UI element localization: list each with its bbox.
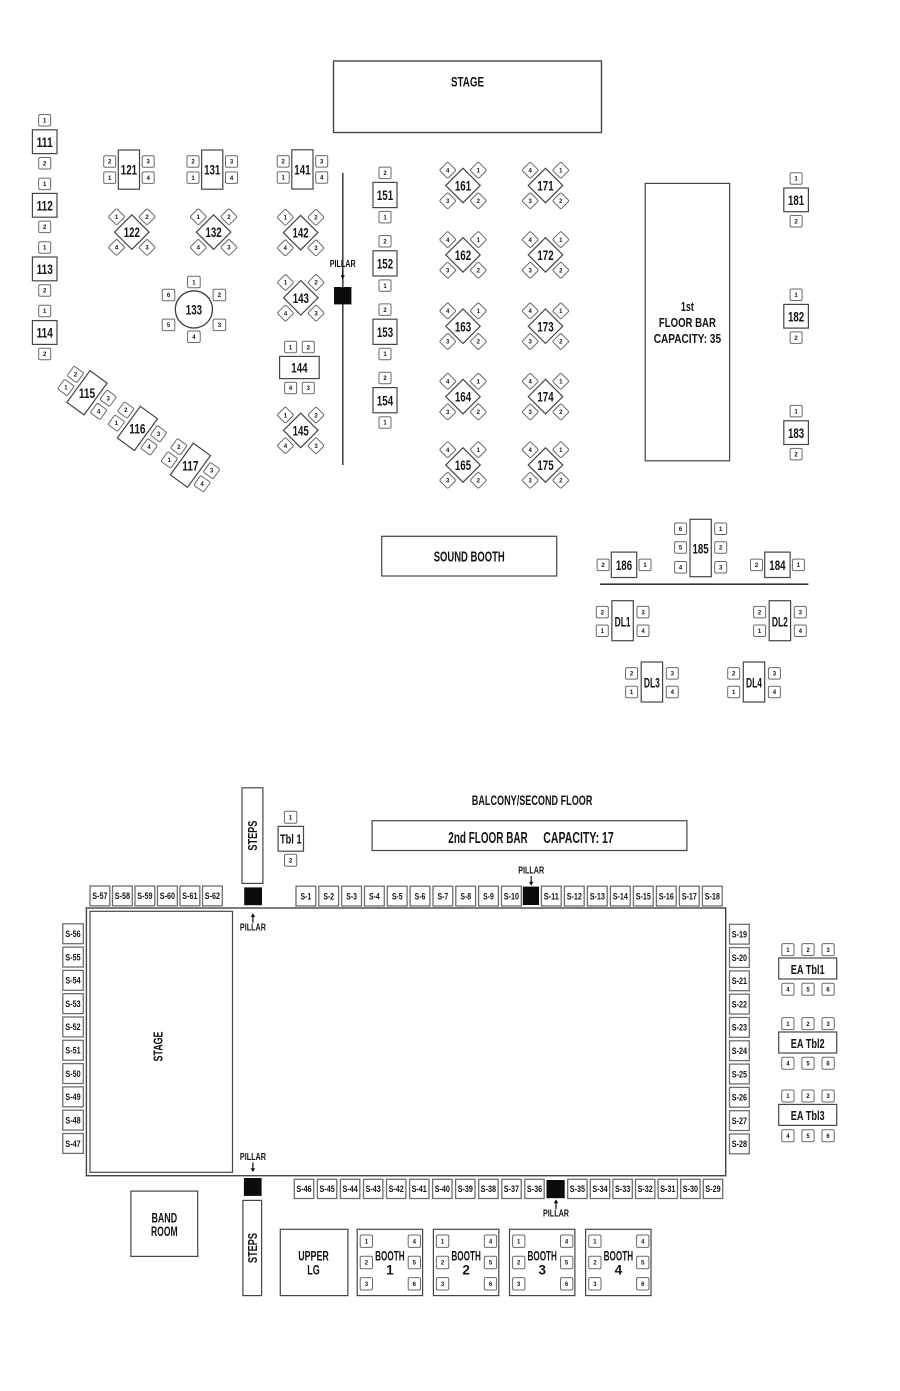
svg-text:S-9: S-9 (483, 891, 494, 901)
svg-text:S-39: S-39 (458, 1184, 473, 1194)
svg-text:184: 184 (769, 557, 785, 573)
svg-text:S-40: S-40 (435, 1184, 450, 1194)
svg-text:S-57: S-57 (92, 891, 107, 901)
svg-text:S-32: S-32 (638, 1184, 653, 1194)
svg-text:111: 111 (37, 134, 53, 150)
svg-text:117: 117 (182, 457, 198, 473)
svg-text:S-52: S-52 (65, 1022, 80, 1032)
svg-text:S-33: S-33 (615, 1184, 630, 1194)
svg-text:S-54: S-54 (65, 976, 80, 986)
svg-text:S-37: S-37 (504, 1184, 519, 1194)
svg-text:S-31: S-31 (660, 1184, 675, 1194)
svg-text:S-36: S-36 (527, 1184, 542, 1194)
svg-text:S-50: S-50 (65, 1069, 80, 1079)
svg-text:STAGE: STAGE (451, 75, 484, 90)
svg-text:S-45: S-45 (320, 1184, 335, 1194)
svg-text:CAPACITY: 17: CAPACITY: 17 (543, 830, 614, 847)
svg-text:1st: 1st (681, 300, 695, 314)
svg-text:2: 2 (462, 1263, 470, 1278)
svg-text:S-60: S-60 (160, 891, 175, 901)
svg-text:S-43: S-43 (366, 1184, 381, 1194)
svg-text:S-34: S-34 (592, 1184, 607, 1194)
svg-text:STEPS: STEPS (246, 1233, 260, 1263)
svg-text:162: 162 (455, 247, 471, 263)
svg-text:114: 114 (37, 325, 53, 341)
svg-text:152: 152 (377, 256, 393, 272)
svg-text:S-22: S-22 (732, 999, 747, 1009)
svg-text:BALCONY/SECOND FLOOR: BALCONY/SECOND FLOOR (472, 792, 593, 808)
svg-text:S-11: S-11 (544, 891, 559, 901)
svg-text:SOUND BOOTH: SOUND BOOTH (434, 549, 505, 566)
svg-text:DL2: DL2 (772, 613, 788, 629)
svg-text:163: 163 (455, 318, 471, 334)
svg-text:S-62: S-62 (205, 891, 220, 901)
svg-text:STEPS: STEPS (246, 821, 260, 851)
svg-text:S-42: S-42 (389, 1184, 404, 1194)
svg-text:175: 175 (537, 457, 553, 473)
svg-text:EA Tbl2: EA Tbl2 (791, 1037, 825, 1051)
svg-text:165: 165 (455, 457, 471, 473)
svg-text:182: 182 (788, 308, 804, 324)
svg-text:S-3: S-3 (346, 891, 357, 901)
svg-text:115: 115 (79, 385, 95, 401)
svg-text:121: 121 (121, 162, 137, 178)
svg-text:S-61: S-61 (182, 891, 197, 901)
svg-text:141: 141 (294, 162, 310, 178)
svg-text:161: 161 (455, 178, 471, 194)
svg-text:S-5: S-5 (392, 891, 403, 901)
svg-text:144: 144 (291, 360, 307, 376)
svg-text:S-38: S-38 (481, 1184, 496, 1194)
svg-text:BOOTH: BOOTH (604, 1249, 634, 1264)
svg-text:PILLAR: PILLAR (240, 1152, 267, 1163)
svg-text:S-4: S-4 (369, 891, 380, 901)
svg-text:S-17: S-17 (682, 891, 697, 901)
svg-text:S-8: S-8 (460, 891, 471, 901)
svg-text:S-51: S-51 (65, 1046, 80, 1056)
svg-text:172: 172 (537, 247, 553, 263)
svg-text:UPPER: UPPER (298, 1248, 329, 1263)
svg-text:S-7: S-7 (438, 891, 449, 901)
svg-text:S-30: S-30 (683, 1184, 698, 1194)
svg-text:S-26: S-26 (732, 1093, 747, 1103)
svg-text:S-20: S-20 (732, 953, 747, 963)
svg-text:S-47: S-47 (65, 1139, 80, 1149)
svg-text:S-2: S-2 (323, 891, 334, 901)
svg-text:153: 153 (377, 324, 393, 340)
svg-text:S-1: S-1 (301, 891, 312, 901)
svg-text:S-29: S-29 (705, 1184, 720, 1194)
svg-text:LG: LG (307, 1263, 320, 1278)
svg-text:PILLAR: PILLAR (543, 1209, 570, 1220)
svg-text:FLOOR BAR: FLOOR BAR (659, 316, 716, 330)
svg-text:116: 116 (129, 421, 145, 437)
svg-text:S-24: S-24 (732, 1046, 747, 1056)
svg-text:DL1: DL1 (615, 613, 631, 629)
svg-text:S-53: S-53 (65, 999, 80, 1009)
svg-text:131: 131 (204, 162, 220, 178)
svg-text:3: 3 (538, 1263, 546, 1278)
svg-text:S-49: S-49 (65, 1092, 80, 1102)
svg-text:PILLAR: PILLAR (240, 922, 267, 933)
svg-text:S-12: S-12 (567, 891, 582, 901)
svg-text:174: 174 (537, 389, 553, 405)
svg-text:4: 4 (615, 1263, 623, 1278)
svg-text:S-18: S-18 (705, 891, 720, 901)
svg-text:142: 142 (293, 225, 309, 241)
svg-text:S-59: S-59 (137, 891, 152, 901)
svg-text:171: 171 (537, 178, 553, 194)
svg-text:S-13: S-13 (590, 891, 605, 901)
svg-text:S-19: S-19 (732, 930, 747, 940)
svg-text:BOOTH: BOOTH (527, 1249, 557, 1264)
svg-text:PILLAR: PILLAR (330, 259, 357, 270)
svg-text:PILLAR: PILLAR (518, 866, 545, 877)
svg-text:S-55: S-55 (65, 952, 80, 962)
svg-text:181: 181 (788, 192, 804, 208)
svg-text:S-58: S-58 (115, 891, 130, 901)
svg-text:S-16: S-16 (659, 891, 674, 901)
svg-text:133: 133 (186, 302, 202, 318)
svg-text:S-56: S-56 (65, 929, 80, 939)
svg-text:112: 112 (37, 197, 53, 213)
svg-text:173: 173 (537, 318, 553, 334)
svg-text:S-14: S-14 (613, 891, 628, 901)
svg-text:S-48: S-48 (65, 1116, 80, 1126)
svg-text:145: 145 (293, 423, 309, 439)
svg-text:143: 143 (293, 290, 309, 306)
svg-text:EA Tbl1: EA Tbl1 (791, 963, 825, 977)
svg-text:113: 113 (37, 261, 53, 277)
svg-text:1: 1 (386, 1263, 394, 1278)
svg-text:186: 186 (616, 557, 632, 573)
svg-text:S-25: S-25 (732, 1069, 747, 1079)
svg-text:BOOTH: BOOTH (375, 1249, 405, 1264)
svg-text:S-35: S-35 (570, 1184, 585, 1194)
svg-text:DL4: DL4 (746, 675, 762, 691)
svg-text:2nd FLOOR BAR: 2nd FLOOR BAR (448, 830, 527, 847)
svg-text:122: 122 (124, 224, 140, 240)
svg-text:S-44: S-44 (343, 1184, 358, 1194)
svg-text:BOOTH: BOOTH (451, 1249, 481, 1264)
svg-text:151: 151 (377, 187, 393, 203)
svg-text:ROOM: ROOM (151, 1224, 178, 1239)
svg-text:S-46: S-46 (296, 1184, 311, 1194)
svg-text:CAPACITY: 35: CAPACITY: 35 (654, 332, 721, 346)
svg-text:S-27: S-27 (732, 1116, 747, 1126)
svg-text:S-23: S-23 (732, 1023, 747, 1033)
svg-text:185: 185 (693, 540, 709, 556)
svg-text:S-41: S-41 (412, 1184, 427, 1194)
svg-text:S-6: S-6 (415, 891, 426, 901)
svg-text:EA Tbl3: EA Tbl3 (791, 1109, 825, 1123)
svg-text:Tbl 1: Tbl 1 (280, 832, 302, 847)
svg-text:154: 154 (377, 392, 393, 408)
svg-text:183: 183 (788, 425, 804, 441)
svg-text:164: 164 (455, 389, 471, 405)
svg-text:S-15: S-15 (636, 891, 651, 901)
svg-text:S-21: S-21 (732, 976, 747, 986)
svg-text:S-10: S-10 (504, 891, 519, 901)
svg-text:STAGE: STAGE (151, 1031, 166, 1061)
svg-text:S-28: S-28 (732, 1139, 747, 1149)
svg-text:132: 132 (206, 224, 222, 240)
svg-text:DL3: DL3 (644, 675, 660, 691)
